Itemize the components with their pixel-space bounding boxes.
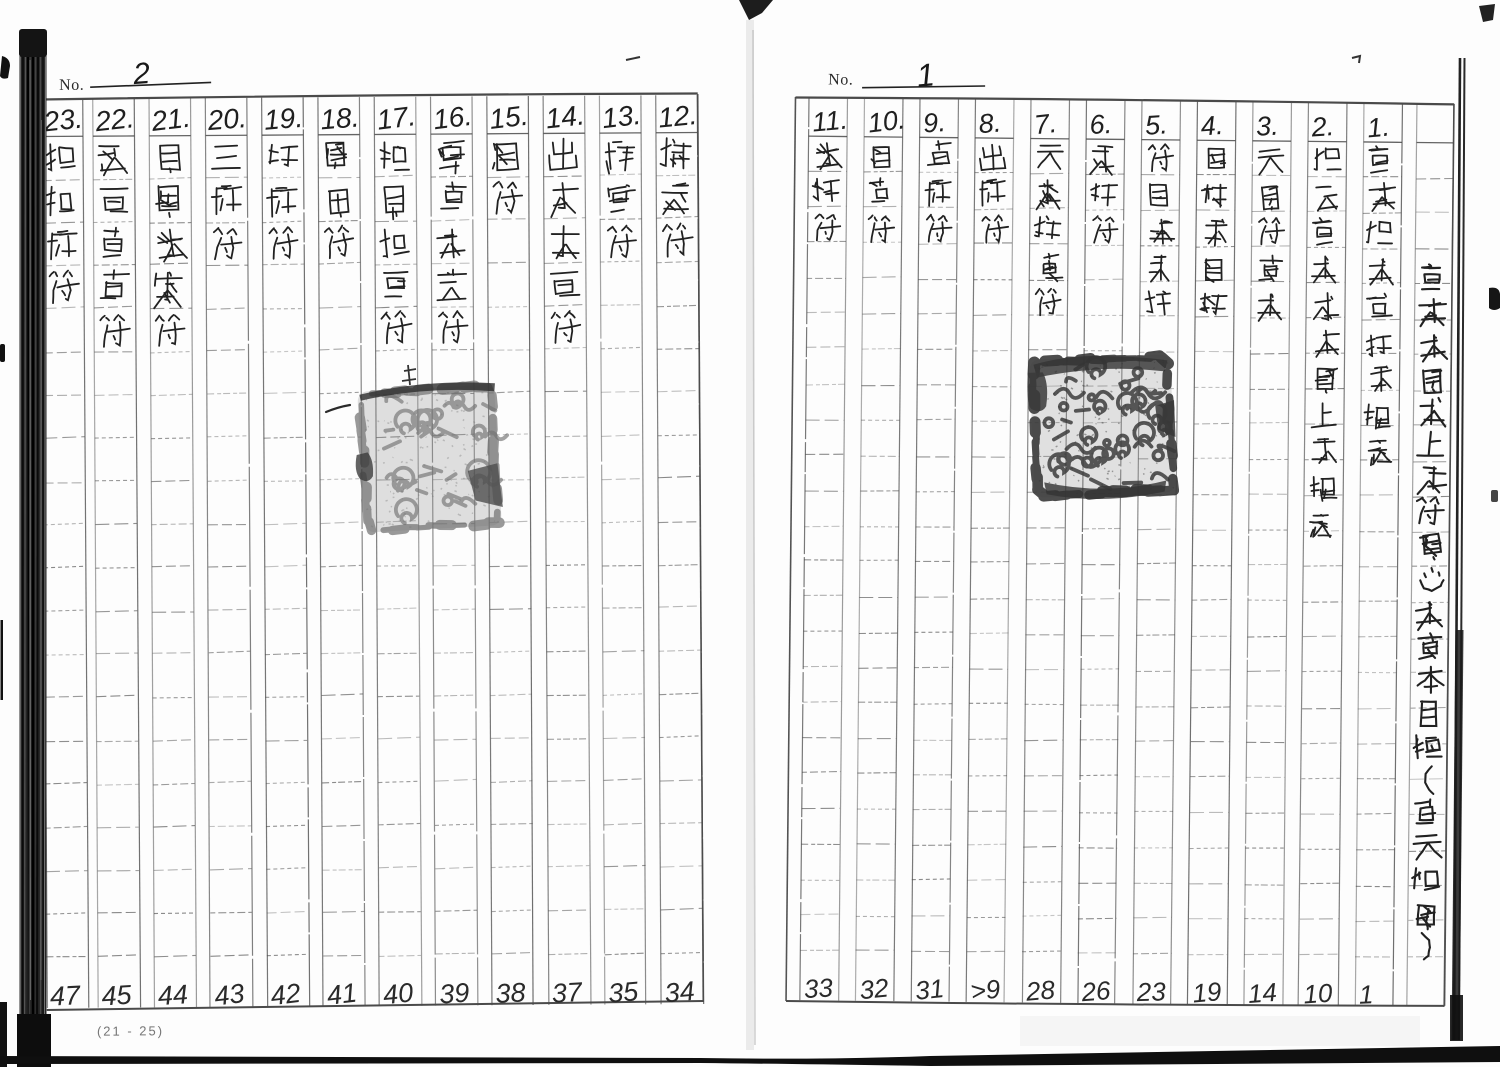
svg-text:No.: No. (59, 77, 84, 94)
svg-text:20.: 20. (206, 102, 248, 136)
svg-text:31: 31 (913, 973, 945, 1006)
svg-text:2.: 2. (1310, 111, 1335, 142)
svg-text:9.: 9. (922, 107, 947, 139)
svg-text:37: 37 (551, 977, 584, 1009)
svg-text:5.: 5. (1144, 109, 1168, 140)
svg-text:(21 - 25): (21 - 25) (97, 1023, 164, 1038)
svg-text:19: 19 (1191, 976, 1222, 1008)
svg-text:12.: 12. (657, 99, 699, 134)
svg-text:33: 33 (803, 972, 834, 1004)
svg-text:28: 28 (1024, 974, 1057, 1006)
svg-text:4.: 4. (1199, 110, 1224, 142)
svg-text:18.: 18. (319, 101, 360, 135)
svg-text:13.: 13. (600, 99, 642, 134)
svg-text:21.: 21. (149, 102, 192, 138)
svg-text:40: 40 (382, 977, 415, 1010)
svg-text:1: 1 (915, 56, 936, 94)
svg-text:19.: 19. (263, 102, 304, 136)
svg-text:10.: 10. (866, 104, 907, 138)
svg-text:35: 35 (607, 976, 640, 1008)
svg-text:44: 44 (157, 979, 189, 1011)
svg-text:32: 32 (858, 972, 890, 1005)
svg-text:15.: 15. (488, 100, 530, 135)
svg-text:6.: 6. (1089, 109, 1113, 140)
svg-text:2: 2 (131, 57, 151, 91)
svg-text:10: 10 (1302, 977, 1333, 1009)
svg-text:16.: 16. (431, 100, 473, 136)
svg-text:8.: 8. (977, 107, 1002, 139)
svg-text:43: 43 (213, 978, 247, 1011)
svg-text:14: 14 (1247, 977, 1278, 1009)
svg-text:39: 39 (438, 977, 470, 1009)
svg-text:17.: 17. (375, 100, 417, 136)
svg-text:>9: >9 (969, 974, 1002, 1007)
svg-text:42: 42 (269, 978, 302, 1011)
svg-text:3.: 3. (1255, 111, 1279, 142)
svg-text:41: 41 (325, 978, 358, 1011)
svg-text:23.: 23. (41, 103, 84, 138)
svg-text:7.: 7. (1033, 108, 1059, 140)
svg-text:1: 1 (1358, 979, 1374, 1010)
svg-text:1.: 1. (1366, 112, 1391, 144)
svg-text:11.: 11. (811, 104, 849, 137)
svg-text:26: 26 (1079, 975, 1112, 1007)
svg-text:23: 23 (1135, 976, 1166, 1007)
svg-text:No.: No. (828, 71, 853, 88)
svg-text:47: 47 (49, 980, 81, 1011)
svg-text:38: 38 (495, 977, 527, 1009)
svg-text:14.: 14. (544, 99, 586, 134)
svg-text:22.: 22. (93, 102, 136, 137)
svg-text:34: 34 (663, 976, 696, 1009)
svg-text:45: 45 (100, 980, 133, 1012)
